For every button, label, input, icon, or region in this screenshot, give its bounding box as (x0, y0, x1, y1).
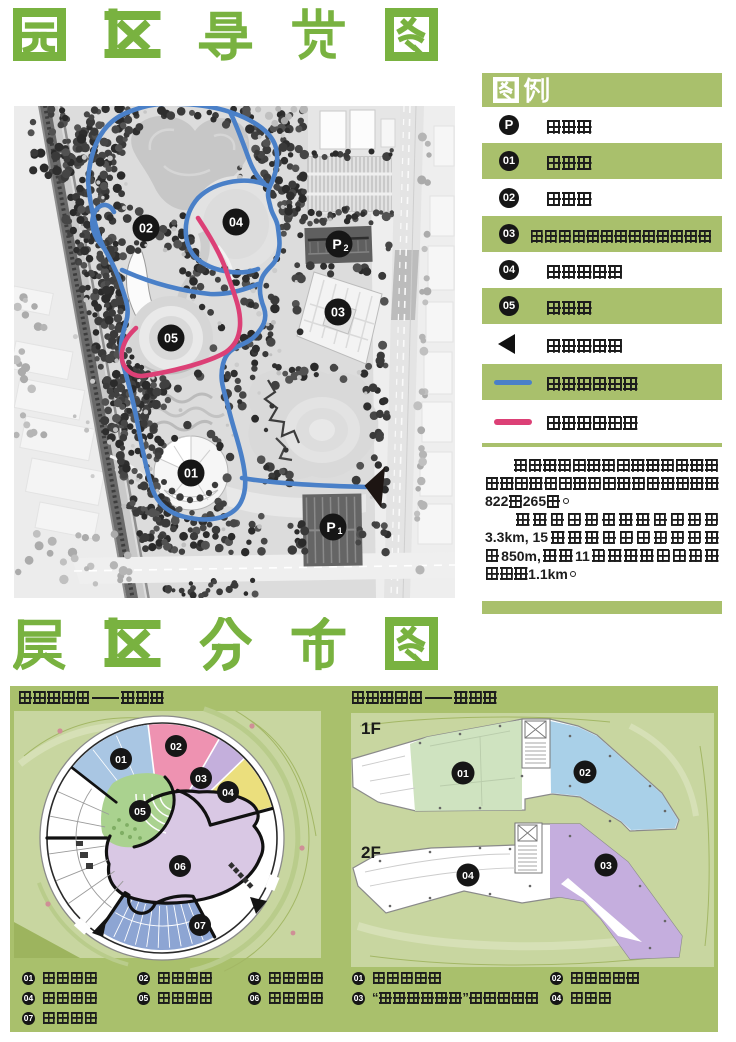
svg-text:02: 02 (170, 741, 182, 753)
svg-text:03: 03 (331, 306, 345, 320)
svg-text:05: 05 (134, 806, 146, 818)
svg-text:01: 01 (457, 768, 469, 780)
svg-text:04: 04 (462, 870, 474, 882)
svg-text:03: 03 (600, 860, 612, 872)
svg-text:01: 01 (115, 754, 127, 766)
svg-text:04: 04 (222, 787, 234, 799)
svg-text:2: 2 (343, 243, 348, 253)
svg-text:2F: 2F (361, 843, 381, 862)
svg-text:07: 07 (194, 920, 206, 932)
svg-text:02: 02 (579, 767, 591, 779)
svg-text:04: 04 (229, 216, 243, 230)
svg-text:P: P (332, 236, 341, 252)
svg-text:1: 1 (337, 526, 342, 536)
svg-text:05: 05 (164, 332, 178, 346)
svg-text:06: 06 (174, 861, 186, 873)
svg-text:1F: 1F (361, 719, 381, 738)
svg-text:02: 02 (139, 222, 153, 236)
svg-text:03: 03 (195, 773, 207, 785)
svg-text:01: 01 (184, 467, 198, 481)
svg-text:P: P (326, 519, 335, 535)
